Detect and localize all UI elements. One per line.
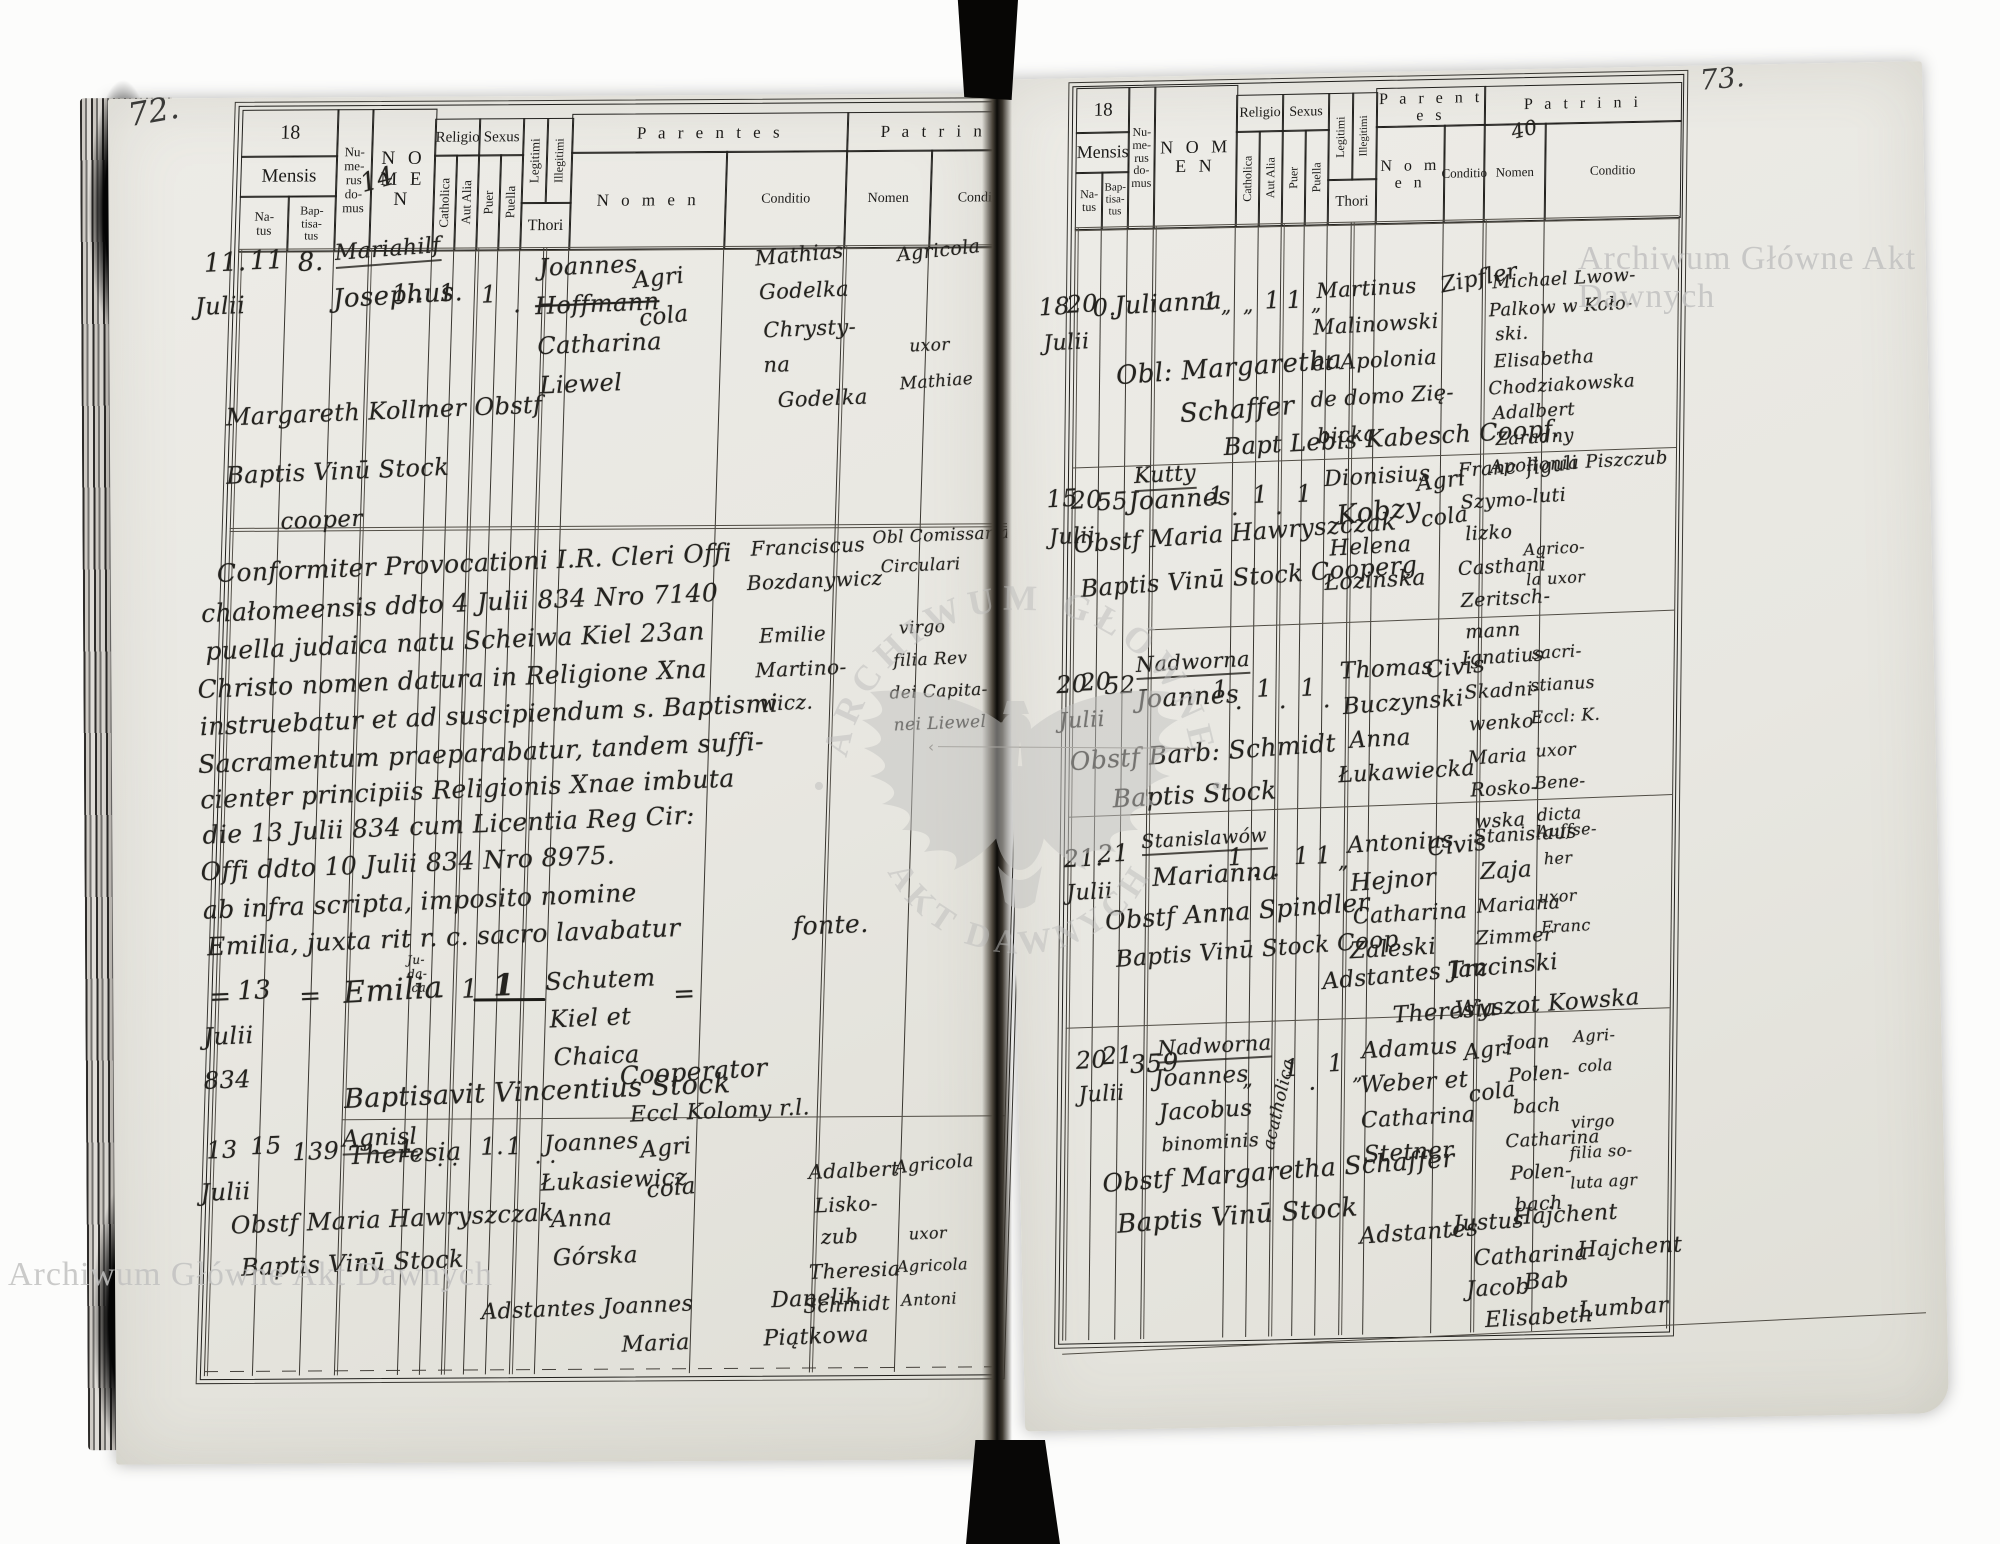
handwriting-fragment: Bene- (1534, 771, 1586, 794)
handwriting-fragment: uxor (908, 1223, 947, 1244)
handwriting-fragment: na (763, 352, 791, 377)
handwriting-fragment: filia so- (1569, 1140, 1633, 1162)
handwriting-fragment: 14 (357, 161, 398, 199)
handwriting-fragment: stianus (1530, 673, 1596, 697)
handwriting-fragment: Mariahilf (334, 233, 442, 269)
handwriting-fragment: = (209, 982, 232, 1013)
watermark-text-top-right: Archiwum Główne Akt Dawnych (1578, 240, 2000, 316)
handwriting-fragment: 11 (249, 245, 284, 276)
handwriting-fragment: . (1230, 493, 1240, 521)
handwriting-fragment: „ (1220, 293, 1232, 318)
handwriting-fragment: Schaffer (1179, 391, 1296, 429)
handwriting-fragment: Godelka (759, 277, 850, 305)
handwriting-fragment: Kiel et (549, 1002, 632, 1033)
watermark-text-bottom-left: Archiwum Główne Akt Dawnych (8, 1256, 493, 1294)
handwriting-fragment: 1 (1315, 841, 1332, 870)
handwriting-fragment: Trzcinski (1447, 949, 1559, 985)
ink-stroke (473, 998, 545, 1001)
handwriting-fragment: Godelka (777, 385, 868, 413)
handwriting-fragment: 139 (292, 1136, 340, 1166)
handwriting-fragment: . (1271, 854, 1281, 882)
handwriting-fragment: Agricola (894, 1150, 975, 1178)
handwriting-fragment: Franc (1541, 915, 1592, 937)
handwriting-fragment: Górska (552, 1242, 638, 1271)
handwriting-fragment: 1 (480, 280, 497, 309)
handwriting-fragment: Anna (550, 1205, 613, 1234)
handwriting-fragment: Malinowski (1312, 309, 1439, 340)
handwriting-fragment: Liewel (539, 368, 623, 399)
handwriting-fragment: virgo (1571, 1111, 1616, 1132)
handwriting-fragment: Agri (639, 1133, 692, 1164)
handwriting-fragment: 1.. (391, 278, 424, 307)
handwriting-fragment: Jacobus (1158, 1095, 1253, 1126)
handwriting-fragment: Mathiae (899, 369, 974, 395)
handwriting-fragment: 13 (237, 975, 272, 1006)
handwriting-fragment: 1, (398, 1134, 423, 1163)
handwriting-fragment: Łukawiecka (1337, 756, 1475, 788)
handwriting-fragment: Mathias (754, 238, 845, 270)
handwriting-fragment: cola (638, 301, 690, 332)
handwriting-fragment: . . (436, 1146, 459, 1172)
svg-text:AKT DAWNYCH: AKT DAWNYCH (880, 856, 1159, 962)
handwriting-fragment: Baptis Vinū Stock (226, 453, 450, 490)
handwriting-fragment: 1 (1264, 286, 1281, 315)
handwriting-fragment: cooper (280, 506, 363, 535)
handwriting-fragment: Antoni (901, 1289, 957, 1310)
handwriting-fragment: Agricola (897, 1254, 969, 1276)
handwriting-fragment: Rosko- (1470, 776, 1538, 802)
handwriting-fragment: Cooperator (619, 1053, 768, 1091)
handwriting-fragment: 1 (1202, 287, 1219, 316)
handwriting-fragment: bach (1512, 1094, 1561, 1119)
handwriting-fragment: Obl: Margaretha (1115, 345, 1343, 391)
handwriting-fragment: uxor (1538, 886, 1577, 907)
handwriting-fragment: Jacob (1466, 1274, 1531, 1302)
seal-dot-right: • (1211, 768, 1223, 805)
handwriting-fragment: de domo Zię- (1310, 380, 1455, 412)
handwriting-fragment: Maria (1467, 744, 1527, 769)
handwriting-fragment: cola (1577, 1055, 1613, 1076)
handwriting-fragment: 13 (206, 1135, 238, 1164)
handwriting-fragment: Auffse- (1537, 819, 1598, 841)
handwriting-fragment: Adamus (1361, 1033, 1458, 1064)
seal-dot-left: • (813, 768, 825, 805)
handwriting-fragment: Baptis Vinū Stock (1116, 1192, 1359, 1239)
handwriting-fragment: . (1278, 686, 1288, 714)
handwriting-fragment: Julii (1043, 329, 1090, 356)
handwriting-fragment: 1 (1300, 673, 1317, 702)
handwriting-fragment: Zaja (1479, 856, 1532, 885)
handwriting-fragment: 1 (1283, 1054, 1300, 1083)
handwriting-fragment: luti (1532, 484, 1567, 508)
handwriting-fragment: 1 (1252, 480, 1269, 509)
handwriting-fragment: Theresia (809, 1256, 901, 1284)
handwriting-fragment: Agri- (1573, 1025, 1616, 1046)
handwriting-fragment: da- (407, 966, 428, 981)
handwriting-fragment: 1 (1293, 841, 1310, 870)
handwriting-fragment: Szymo- (1460, 488, 1533, 514)
handwriting-fragment: Joannes (1153, 1061, 1249, 1092)
handwriting-fragment: uxor (909, 335, 950, 357)
handwriting-fragment: Anna (1349, 725, 1412, 754)
handwriting-fragment: zub (820, 1223, 858, 1249)
handwriting-fragment: Eccl: K. (1530, 705, 1600, 729)
handwriting-fragment: 1 (1327, 1049, 1344, 1078)
handwriting-fragment: - (435, 981, 445, 1009)
handwriting-fragment: Polen- (1510, 1159, 1573, 1184)
handwriting-fragment: 1 (1286, 285, 1303, 314)
handwriting-fragment: wenko (1468, 710, 1534, 736)
handwriting-fragment: Hajchent (1512, 1200, 1618, 1231)
handwriting-fragment: Julii (1078, 1081, 1125, 1108)
handwriting-fragment: Schutem (545, 963, 656, 995)
handwriting-fragment: Catharina (1360, 1102, 1476, 1133)
handwriting-fragment: Joannes (538, 250, 638, 282)
handwriting-fragment: Adstantes Joannes (481, 1291, 694, 1325)
handwriting-fragment: ski. (1495, 323, 1529, 346)
handwriting-fragment: Catharina (1473, 1240, 1589, 1271)
handwriting-fragment: uxor (1535, 740, 1577, 762)
handwriting-fragment: Hajchent (1577, 1232, 1683, 1263)
handwriting-fragment: Martinus (1316, 274, 1417, 303)
handwriting-fragment: her (1543, 848, 1573, 869)
handwriting-fragment: cola (645, 1173, 697, 1203)
handwriting-fragment: mann (1465, 618, 1522, 643)
handwriting-fragment: Wyszot Kowska (1454, 984, 1641, 1023)
seal-text-bottom: AKT DAWNYCH (880, 856, 1159, 962)
bookmark-ribbon-bottom (966, 1440, 1060, 1544)
handwriting-fragment: Weber et (1360, 1067, 1469, 1099)
handwriting-fragment: Elisabetha (1493, 346, 1594, 372)
handwriting-fragment: = (673, 979, 696, 1010)
handwriting-fragment: Danelik (771, 1285, 860, 1314)
handwriting-fragment: Agri (632, 263, 686, 295)
handwriting-fragment: sacri- (1531, 641, 1582, 664)
handwriting-fragment: 1. (480, 1132, 505, 1161)
handwriting-fragment: . (513, 290, 522, 318)
handwriting-fragment: Obstf Maria Hawryszczak (230, 1198, 554, 1239)
handwriting-fragment: luta agr (1570, 1170, 1638, 1193)
handwriting-fragment: Polen- (1508, 1061, 1571, 1086)
handwriting-fragment: 15 (250, 1131, 282, 1160)
handwriting-fragment: Thomas (1339, 653, 1434, 684)
handwriting-fragment: la uxor (1526, 567, 1586, 589)
handwriting-fragment: binominis (1161, 1129, 1260, 1156)
handwriting-fragment: Agrico- (1523, 537, 1585, 559)
handwriting-fragment: Bab (1524, 1268, 1570, 1295)
handwriting-fragment: „ (1242, 292, 1254, 317)
bookmark-ribbon-top (954, 0, 1018, 100)
handwriting-fragment: Piątkowa (763, 1322, 869, 1351)
handwriting-fragment: Skadni- (1464, 678, 1541, 704)
handwriting-fragment: Lumbar (1578, 1293, 1669, 1323)
handwriting-fragment: Franc (1457, 456, 1517, 481)
handwriting-fragment: 1 (1296, 479, 1313, 508)
handwriting-fragment: 11. (203, 247, 247, 279)
right-page-number: 73. (1699, 60, 1746, 97)
handwriting-fragment: Joannes (544, 1128, 640, 1158)
handwriting-fragment: 1 (506, 1132, 523, 1161)
handwriting-fragment: Agricola (896, 235, 982, 266)
handwriting-fragment: Emilia (342, 970, 443, 1011)
handwriting-fragment: Zeritsch- (1460, 585, 1551, 612)
handwriting-fragment: lizko (1465, 521, 1513, 546)
handwriting-fragment: . (1322, 685, 1332, 713)
handwriting-fragment: Chrysty- (763, 315, 857, 343)
handwriting-fragment: Ju- (407, 952, 425, 967)
handwriting-fragment: ica (407, 980, 426, 995)
handwriting-fragment: Lisko- (814, 1191, 878, 1218)
handwriting-fragment: 1 (1208, 481, 1225, 510)
handwriting-fragment: Obstf Margaretha Schaffer (1101, 1144, 1455, 1198)
archive-eagle-seal-watermark: ARCHIWUM GŁÓWNE AKT DAWNYCH • • (795, 535, 1245, 1015)
handwriting-fragment: . (1251, 854, 1261, 882)
handwriting-fragment: Julii (200, 1177, 251, 1207)
handwriting-fragment: Julii (195, 291, 246, 321)
handwriting-fragment: 1 (1256, 674, 1273, 703)
handwriting-fragment: 8. (297, 247, 324, 278)
handwriting-fragment: Chodziakowska (1488, 370, 1636, 399)
handwriting-fragment: 40 (1509, 114, 1540, 143)
handwriting-fragment: 55 (1096, 487, 1129, 517)
handwriting-fragment: = (299, 981, 322, 1012)
handwriting-fragment: 834 (203, 1065, 251, 1095)
handwriting-fragment: Maria (621, 1330, 690, 1358)
handwriting-fragment: Catharina (537, 327, 663, 360)
handwriting-fragment: Adalbert (808, 1156, 900, 1184)
handwriting-fragment: Julii (203, 1021, 254, 1051)
handwriting-fragment: Joan (1505, 1030, 1550, 1054)
handwriting-fragment: Margareth Kollmer Obstf (225, 391, 543, 432)
handwriting-fragment: . (1307, 1067, 1317, 1095)
handwriting-fragment: 1. (438, 278, 463, 307)
handwriting-fragment: Elisabeth (1484, 1302, 1593, 1333)
handwriting-fragment: „ (1241, 1067, 1253, 1092)
handwriting-fragment: Buczynski (1342, 685, 1465, 720)
